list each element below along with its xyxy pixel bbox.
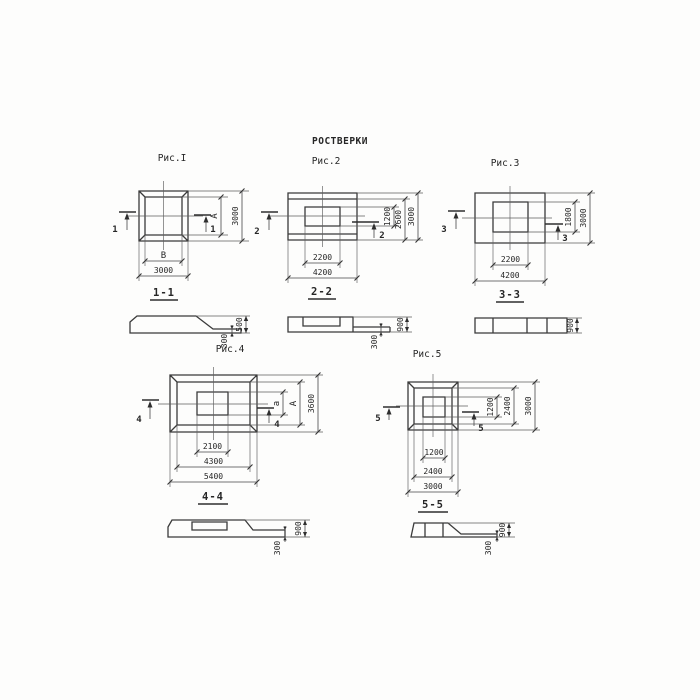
dim-label-2600: 2600 bbox=[394, 210, 403, 229]
dim-label-5400: 5400 bbox=[204, 472, 223, 481]
section3-height-label: 900 bbox=[566, 318, 575, 333]
section4-step-label: 300 bbox=[273, 541, 282, 556]
figure5-label: Рис.5 bbox=[413, 349, 442, 360]
figure2-label: Рис.2 bbox=[312, 156, 341, 167]
section-title-3-3: 3-3 bbox=[499, 289, 521, 301]
section2-step-label: 300 bbox=[370, 335, 379, 350]
cut-number: 5 bbox=[375, 414, 380, 424]
dim-label-2100: 2100 bbox=[203, 442, 222, 451]
dim-label-A: А bbox=[289, 400, 299, 406]
section2-height-label: 900 bbox=[396, 317, 405, 332]
dim-label-2200: 2200 bbox=[501, 255, 520, 264]
dim-label-4200: 4200 bbox=[500, 271, 519, 280]
section-title-1-1: 1-1 bbox=[153, 287, 175, 299]
section-title-5-5: 5-5 bbox=[422, 499, 444, 511]
dim-label-1200-b: 1200 bbox=[424, 448, 443, 457]
cut-number: 1 bbox=[210, 225, 215, 235]
cut-number: 4 bbox=[274, 420, 280, 430]
section5-step-label: 300 bbox=[484, 541, 493, 556]
cut-number: 4 bbox=[136, 415, 142, 425]
dim-label-3000: 3000 bbox=[579, 208, 588, 227]
dim-label-1200: 1200 bbox=[486, 397, 495, 416]
dim-label-1200: 1200 bbox=[383, 207, 392, 226]
figure4-label: Рис.4 bbox=[216, 344, 245, 355]
section1-height-label: 500 bbox=[235, 317, 244, 332]
cut-number: 3 bbox=[441, 225, 446, 235]
dim-label-A: А bbox=[210, 213, 220, 219]
cut-number: 1 bbox=[112, 225, 117, 235]
dim-label-3000-h: 3000 bbox=[154, 266, 173, 275]
dim-label-3000: 3000 bbox=[524, 396, 533, 415]
dim-label-3000-b: 3000 bbox=[423, 482, 442, 491]
cut-number: 5 bbox=[478, 424, 483, 434]
section-title-4-4: 4-4 bbox=[202, 491, 224, 503]
dim-label-2200: 2200 bbox=[313, 253, 332, 262]
dim-label-2400: 2400 bbox=[503, 396, 512, 415]
paper-background bbox=[0, 0, 700, 700]
dim-label-B: В bbox=[161, 251, 166, 261]
dim-label-2400-b: 2400 bbox=[423, 467, 442, 476]
dim-label-3600: 3600 bbox=[307, 394, 316, 413]
scanned-drawing-page: РОСТВЕРКИ Рис.I 1 1 А 3000 В 3000 1-1 50… bbox=[0, 0, 700, 700]
cut-number: 3 bbox=[562, 234, 567, 244]
cut-number: 2 bbox=[379, 231, 384, 241]
section4-height-label: 900 bbox=[294, 521, 303, 536]
cut-number: 2 bbox=[254, 227, 259, 237]
section5-height-label: 900 bbox=[498, 523, 507, 538]
dim-label-4200: 4200 bbox=[313, 268, 332, 277]
dim-label-4300: 4300 bbox=[204, 457, 223, 466]
figure3-label: Рис.3 bbox=[491, 158, 520, 169]
dim-label-1800: 1800 bbox=[564, 207, 573, 226]
dim-label-3000: 3000 bbox=[407, 207, 416, 226]
figure1-label: Рис.I bbox=[158, 153, 187, 164]
drawing-canvas: РОСТВЕРКИ Рис.I 1 1 А 3000 В 3000 1-1 50… bbox=[0, 0, 700, 700]
section-title-2-2: 2-2 bbox=[311, 286, 333, 298]
dim-label-3000-v: 3000 bbox=[231, 206, 240, 225]
sheet-title: РОСТВЕРКИ bbox=[312, 136, 368, 147]
dim-label-a-small: а bbox=[272, 401, 282, 406]
